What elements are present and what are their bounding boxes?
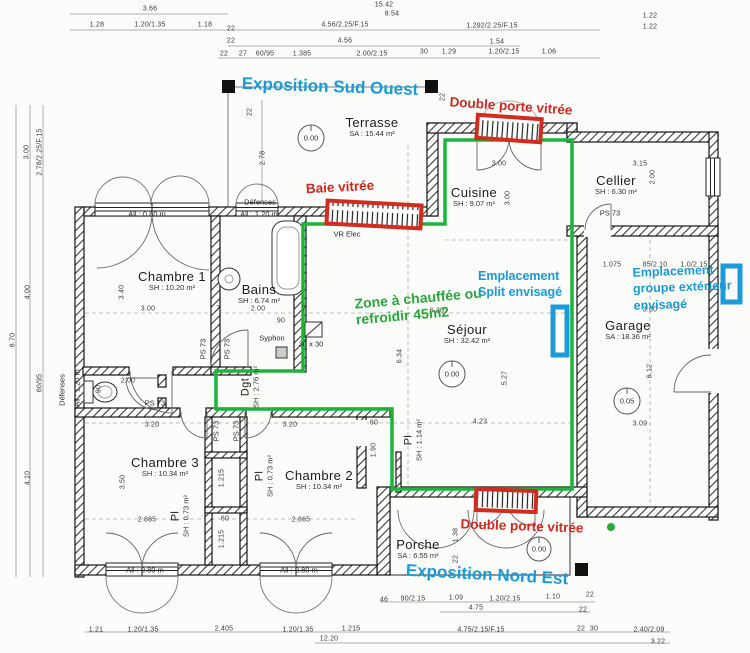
room-label-terrasse: TerrasseSA : 15.44 m² [345,116,398,138]
dimension-label: 1.075 [603,262,622,269]
green-dot-marker [607,523,615,531]
plan-label: PS 73 [232,421,241,441]
room-area: SH : 10.20 m² [138,284,206,292]
dimension-label: 90 [277,318,285,325]
dimension-label: 60/95 [256,51,275,58]
floorplan-drawing: Exposition Sud Ouest Exposition Nord Est… [0,0,750,653]
wall-openings [356,225,721,446]
room-name: Garage [605,319,651,333]
level-marker-label: 0.00 [532,545,547,553]
dimension-label: 4.23 [473,419,487,426]
dimension-label: 2.865 [292,517,311,524]
dimension-label: 2.78/2.25/F.15 [37,128,44,175]
dimension-label: 12.20 [320,636,339,643]
plan-label: All : 0.80 m [280,566,318,575]
dimension-label: 2.00 [121,378,135,385]
room-label-cellier: CellierSH : 6.30 m² [595,174,637,196]
dimension-label: 1.28 [90,22,104,29]
room-area: SH : 10.34 m² [285,483,353,491]
plan-label: All : 1.20 m [73,369,82,407]
double-door-glazed-marker-bottom [476,489,537,512]
split-indoor-unit-marker [553,307,567,355]
dimension-label: 3.50 [120,475,127,489]
plan-label: PS 73 [212,421,221,441]
dimension-label: 1.18 [198,22,212,29]
dimension-label: 46 [380,597,388,604]
dimension-label: 27 [239,51,247,58]
dimension-label: 22 [227,38,235,45]
plan-label: PS 73 [199,339,208,359]
dimension-label: 60/95 [37,374,44,393]
room-name: Séjour [444,323,490,337]
dimension-label: 4.75/2.15/F.15 [457,627,504,634]
dimension-label: 1.20/1.35 [135,22,166,29]
room-name: Bains [238,283,280,297]
dimension-label: 22 [247,108,254,116]
room-area: SH : 10.34 m² [131,470,199,478]
level-marker-label: 0.05 [620,397,635,405]
level-marker-label: 0.00 [445,370,460,378]
room-area: SH : 0.73 m² [266,455,274,497]
room-name: Cellier [595,174,637,188]
plan-label: All : 0.80 m [128,210,166,219]
dimension-label: 1.20/2.15 [489,49,520,56]
room-name: Chambre 1 [138,270,206,284]
plan-label: PS 73 [145,399,165,408]
annotation-groupe-exterieur: Emplacement groupe extérieur envisagé [632,261,732,313]
dimension-label: 7 [216,306,220,313]
annotation-groupe-line2: groupe extérieur [633,278,732,298]
room-area: SH : 6.74 m² [238,297,280,305]
dimension-label: 4.56/2.25/F.15 [321,22,368,29]
plan-label: All : 1.20 m [240,210,278,219]
room-area: SH : 1.14 m² [415,419,423,461]
dimension-label: 90 [96,385,103,393]
dimension-label: 15.42 [375,2,394,9]
room-area: SH : 2.76 m² [252,366,260,408]
dimension-label: 4.00 [25,285,32,299]
dimension-label: 3.66 [143,6,157,13]
dimension-label: 3.20 [283,422,297,429]
dimension-label: 6.12 [647,364,654,378]
dimension-label: 1.20/1.35 [283,627,314,634]
double-door-glazed-marker-top [476,115,541,142]
room-label-garage: GarageSA : 18.36 m² [605,319,651,341]
dimension-label: 30 [420,49,428,56]
dimension-label: 60 [221,516,229,523]
room-name: Pl [254,455,266,497]
dimension-label: 3.00 [141,306,155,313]
dimension-label: 1.215 [219,469,226,488]
dimension-label: 22 [220,51,228,58]
room-label-s-jour: SéjourSH : 32.42 m² [444,323,490,345]
dimension-label: 2.00 [650,170,657,184]
dimension-label: 1.90 [371,443,378,457]
dimension-label: 3.00 [492,161,506,168]
dimension-label: 3.15 [633,161,647,168]
plan-label: Syphon [259,334,284,343]
dimension-label: 1.54 [490,39,504,46]
sink-icon [218,268,240,290]
plan-label: PS 73 [600,209,620,218]
dimension-label: 1.06 [542,49,556,56]
room-name: Pl [403,419,415,461]
dimension-label: 3.20 [145,422,159,429]
room-label-porche: PorcheSA : 6.55 m² [396,538,440,560]
room-area: SH : 6.30 m² [595,188,637,196]
dimension-label: 1.20/1.35 [128,627,159,634]
syphon-icon [276,347,287,358]
plan-label: VR Elec [333,230,360,239]
dimension-label: 4.56 [338,38,352,45]
room-area: SA : 6.55 m² [396,552,440,560]
dimension-label: 22 [440,93,447,101]
room-area: SH : 32.42 m² [444,337,490,345]
dimension-label: 2.865 [138,517,157,524]
dimension-label: 1.22 [643,13,657,20]
annotation-split-envisage: Emplacement Split envisagé [478,268,562,301]
room-area: SA : 18.36 m² [605,333,651,341]
dimension-label: 90/2.15 [401,596,426,603]
floorplan-page: Exposition Sud Ouest Exposition Nord Est… [0,0,750,653]
dimension-label: 4.10 [25,471,32,485]
dimension-label: 4.75 [469,605,483,612]
dimension-label: 22 [227,26,235,33]
dimension-label: 3.09 [633,421,647,428]
dimension-label: 1.29 [442,49,456,56]
dimension-label: 3.00 [24,145,31,159]
dimension-label: 6.34 [397,349,404,363]
dimension-label: 3.22 [651,639,665,646]
plan-label: Défenses [244,198,276,207]
dimension-label: 1.215 [219,530,226,549]
dimension-label: 8.54 [385,11,399,18]
dimension-label: 2.00/2.15 [357,51,388,58]
room-area: SH : 9.07 m² [451,200,497,208]
dimension-label: 3.40 [119,285,126,299]
room-name: Dgt [240,366,252,408]
fixtures [84,221,322,403]
room-name: Terrasse [345,116,398,130]
room-name: Chambre 3 [131,456,199,470]
dimension-label: 60 [370,420,378,427]
annotation-split-line2: Split envisagé [478,284,562,300]
room-name: Chambre 2 [285,469,353,483]
dimension-label: 3.00 [505,191,512,205]
dimension-label: 30 [590,626,598,633]
dimension-label: 1.292/2.25/F.15 [466,23,517,30]
dimension-label: 7 [302,306,306,313]
dimension-label: 1.09 [449,595,463,602]
dimension-label: 22 [586,592,594,599]
room-area: SH : 0.73 m² [182,495,190,537]
dimension-label: 22 [579,607,587,614]
dimension-label: 8.70 [10,333,17,347]
plan-label: Défenses [58,374,67,406]
dimension-label: 2.78 [260,151,267,165]
annotation-split-line1: Emplacement [478,268,562,284]
annotation-groupe-line3: envisagé [633,294,732,314]
dimension-label: 2.00 [251,306,265,313]
dimension-label: 2.405 [215,626,234,633]
plan-label: 30 x 30 [299,340,324,349]
room-label-dgt: DgtSH : 2.76 m² [240,366,259,408]
room-label-cuisine: CuisineSH : 9.07 m² [451,186,497,208]
dimension-label: 1.20/2.15 [490,596,521,603]
dimension-label: 22 [453,555,460,563]
room-label-pl: PlSH : 0.73 m² [170,495,189,537]
room-name: Pl [170,495,182,537]
bay-window-marker [326,201,421,229]
dimension-label: 1.10 [546,594,560,601]
plan-label: PS 73 [223,339,232,359]
room-area: SA : 15.44 m² [345,130,398,138]
dimension-label: 1.215 [342,626,361,633]
room-name: Porche [396,538,440,552]
room-label-chambre-2: Chambre 2SH : 10.34 m² [285,469,353,491]
dimension-label: 5.27 [502,371,509,385]
room-label-pl: PlSH : 0.73 m² [254,455,273,497]
room-label-bains: BainsSH : 6.74 m² [238,283,280,305]
room-label-pl: PlSH : 1.14 m² [403,419,422,461]
dimension-label: 1.22 [643,24,657,31]
dimension-label: 1.38 [453,528,460,542]
dimension-label: 22 [577,626,585,633]
room-label-chambre-3: Chambre 3SH : 10.34 m² [131,456,199,478]
dimension-label: 1.21 [89,627,103,634]
toilet-icon [84,381,93,403]
plan-label: All : 0.80 m [126,566,164,575]
dimension-label: 2.40/2.09 [634,627,665,634]
room-label-chambre-1: Chambre 1SH : 10.20 m² [138,270,206,292]
dimension-label: 1.385 [293,51,312,58]
room-name: Cuisine [451,186,497,200]
level-marker-label: 0.00 [304,134,319,142]
